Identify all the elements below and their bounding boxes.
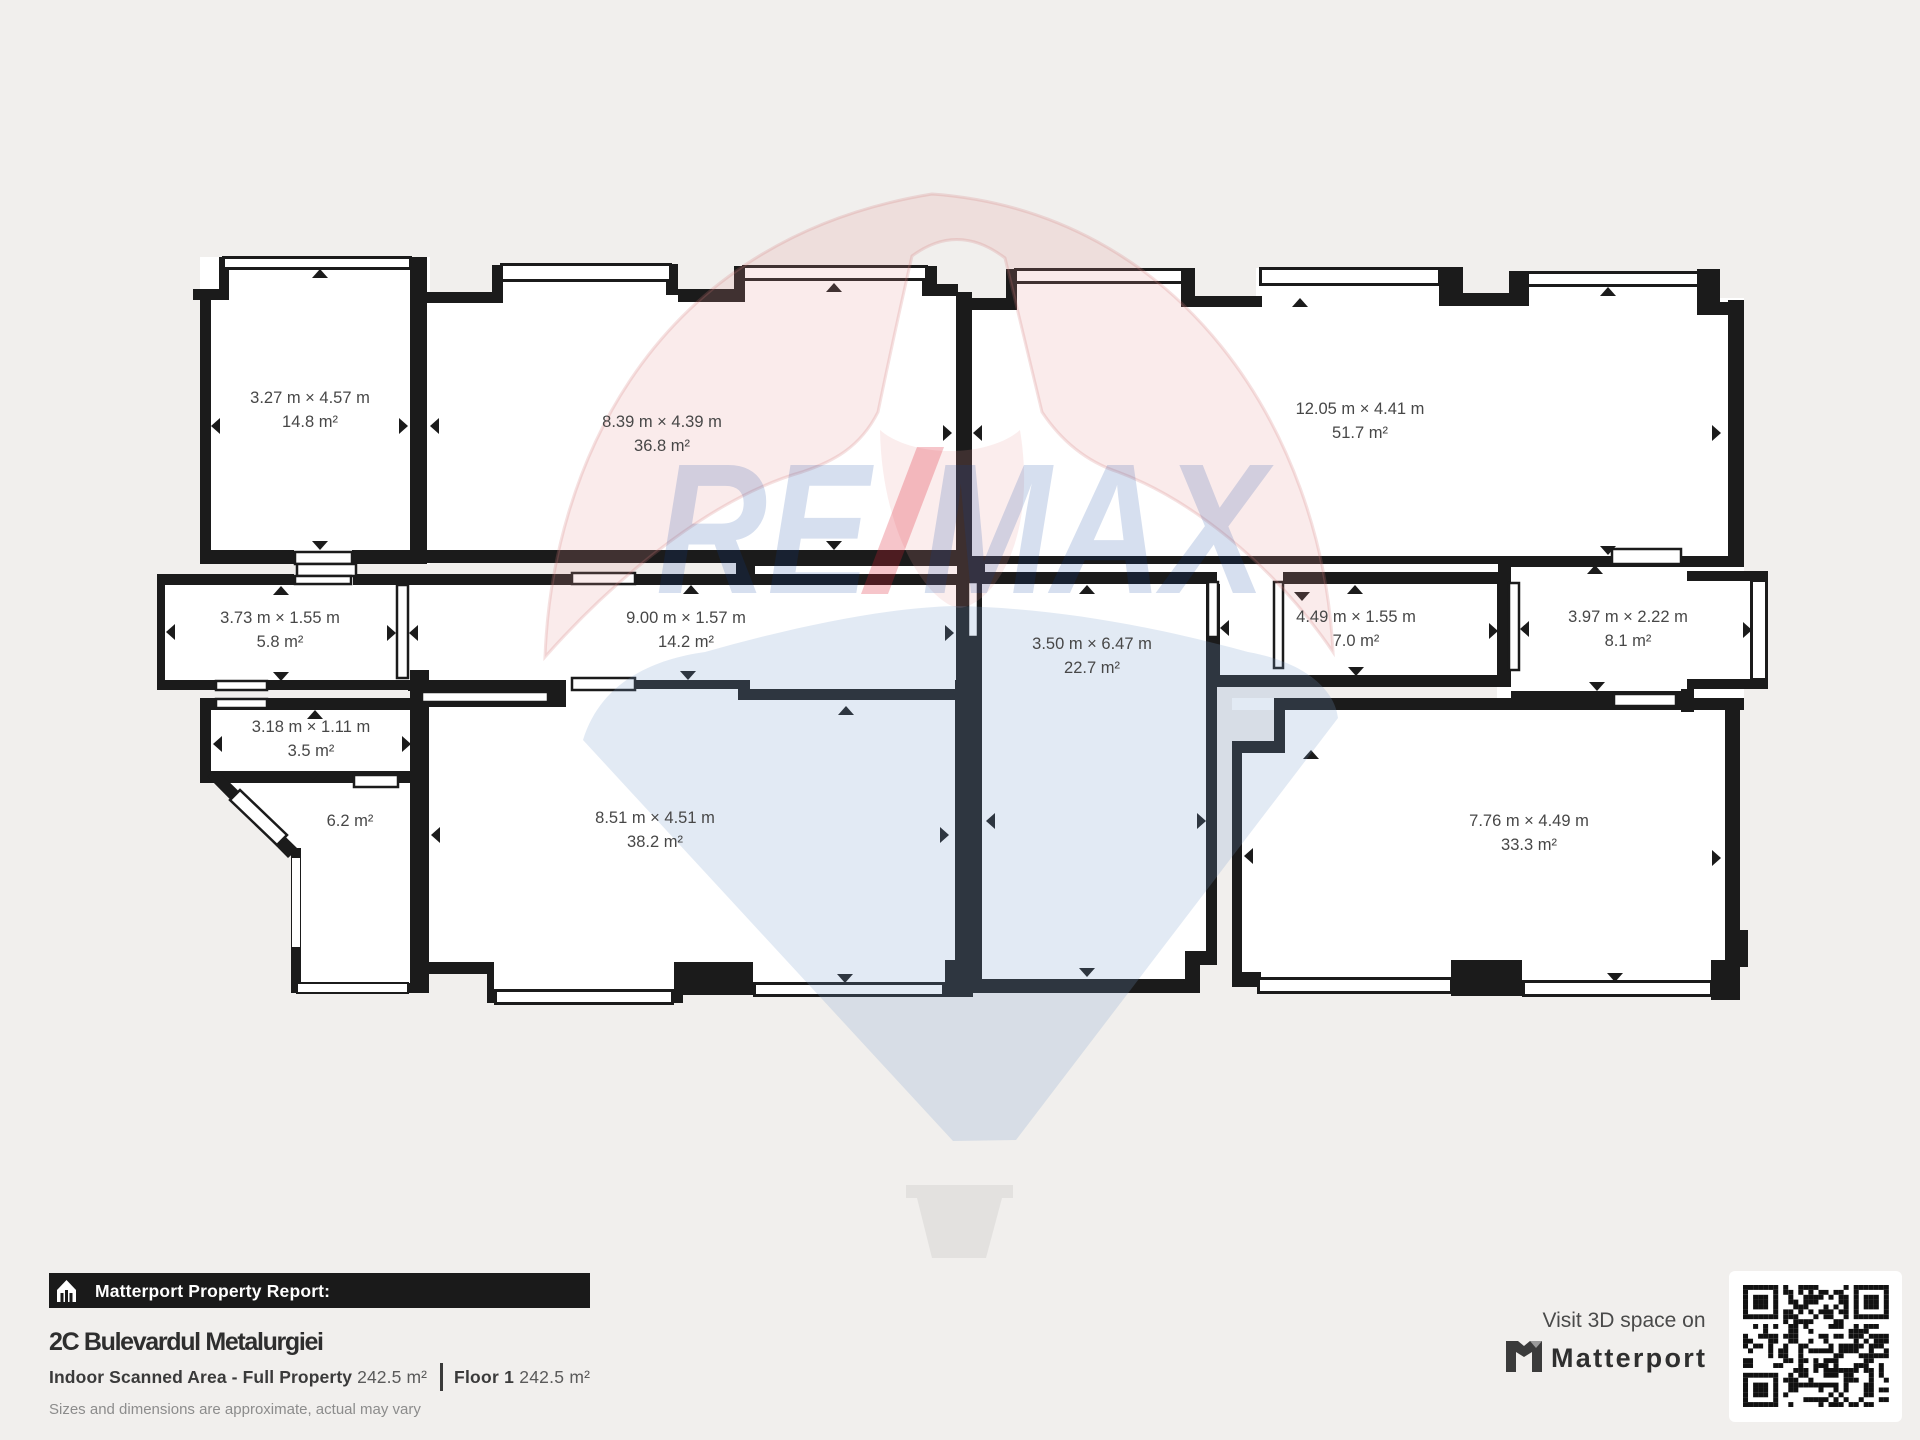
svg-text:6.2 m²: 6.2 m² [327,812,374,830]
svg-text:7.0 m²: 7.0 m² [1333,632,1380,650]
svg-text:8.1 m²: 8.1 m² [1605,632,1652,650]
svg-text:22.7 m²: 22.7 m² [1064,659,1120,677]
svg-text:Floor 1 242.5 m²: Floor 1 242.5 m² [454,1367,590,1387]
svg-text:8.51 m × 4.51 m: 8.51 m × 4.51 m [595,809,715,827]
svg-text:3.5 m²: 3.5 m² [288,742,335,760]
svg-text:2C Bulevardul Metalurgiei: 2C Bulevardul Metalurgiei [49,1328,324,1356]
svg-text:MAX: MAX [922,426,1274,633]
svg-text:4.49 m × 1.55 m: 4.49 m × 1.55 m [1296,608,1416,626]
svg-text:7.76 m × 4.49 m: 7.76 m × 4.49 m [1469,812,1589,830]
svg-text:Sizes and dimensions are appro: Sizes and dimensions are approximate, ac… [49,1401,421,1418]
svg-text:36.8 m²: 36.8 m² [634,437,690,455]
svg-text:9.00 m × 1.57 m: 9.00 m × 1.57 m [626,609,746,627]
svg-text:3.73 m × 1.55 m: 3.73 m × 1.55 m [220,609,340,627]
svg-text:51.7 m²: 51.7 m² [1332,424,1388,442]
svg-text:33.3 m²: 33.3 m² [1501,836,1557,854]
svg-text:Indoor Scanned Area - Full Pro: Indoor Scanned Area - Full Property 242.… [49,1367,427,1387]
svg-text:Visit 3D space on: Visit 3D space on [1542,1309,1705,1332]
svg-text:38.2 m²: 38.2 m² [627,833,683,851]
svg-text:3.97 m × 2.22 m: 3.97 m × 2.22 m [1568,608,1688,626]
svg-text:3.18 m × 1.11 m: 3.18 m × 1.11 m [252,718,370,736]
svg-text:5.8 m²: 5.8 m² [257,633,304,651]
svg-text:14.2 m²: 14.2 m² [658,633,714,651]
svg-text:Matterport Property Report:: Matterport Property Report: [95,1281,330,1301]
svg-text:RE: RE [656,426,874,633]
svg-text:12.05 m × 4.41 m: 12.05 m × 4.41 m [1296,400,1425,418]
svg-text:14.8 m²: 14.8 m² [282,413,338,431]
svg-text:3.50 m × 6.47 m: 3.50 m × 6.47 m [1032,635,1152,653]
svg-text:3.27 m × 4.57 m: 3.27 m × 4.57 m [250,389,370,407]
svg-text:8.39 m × 4.39 m: 8.39 m × 4.39 m [602,413,722,431]
